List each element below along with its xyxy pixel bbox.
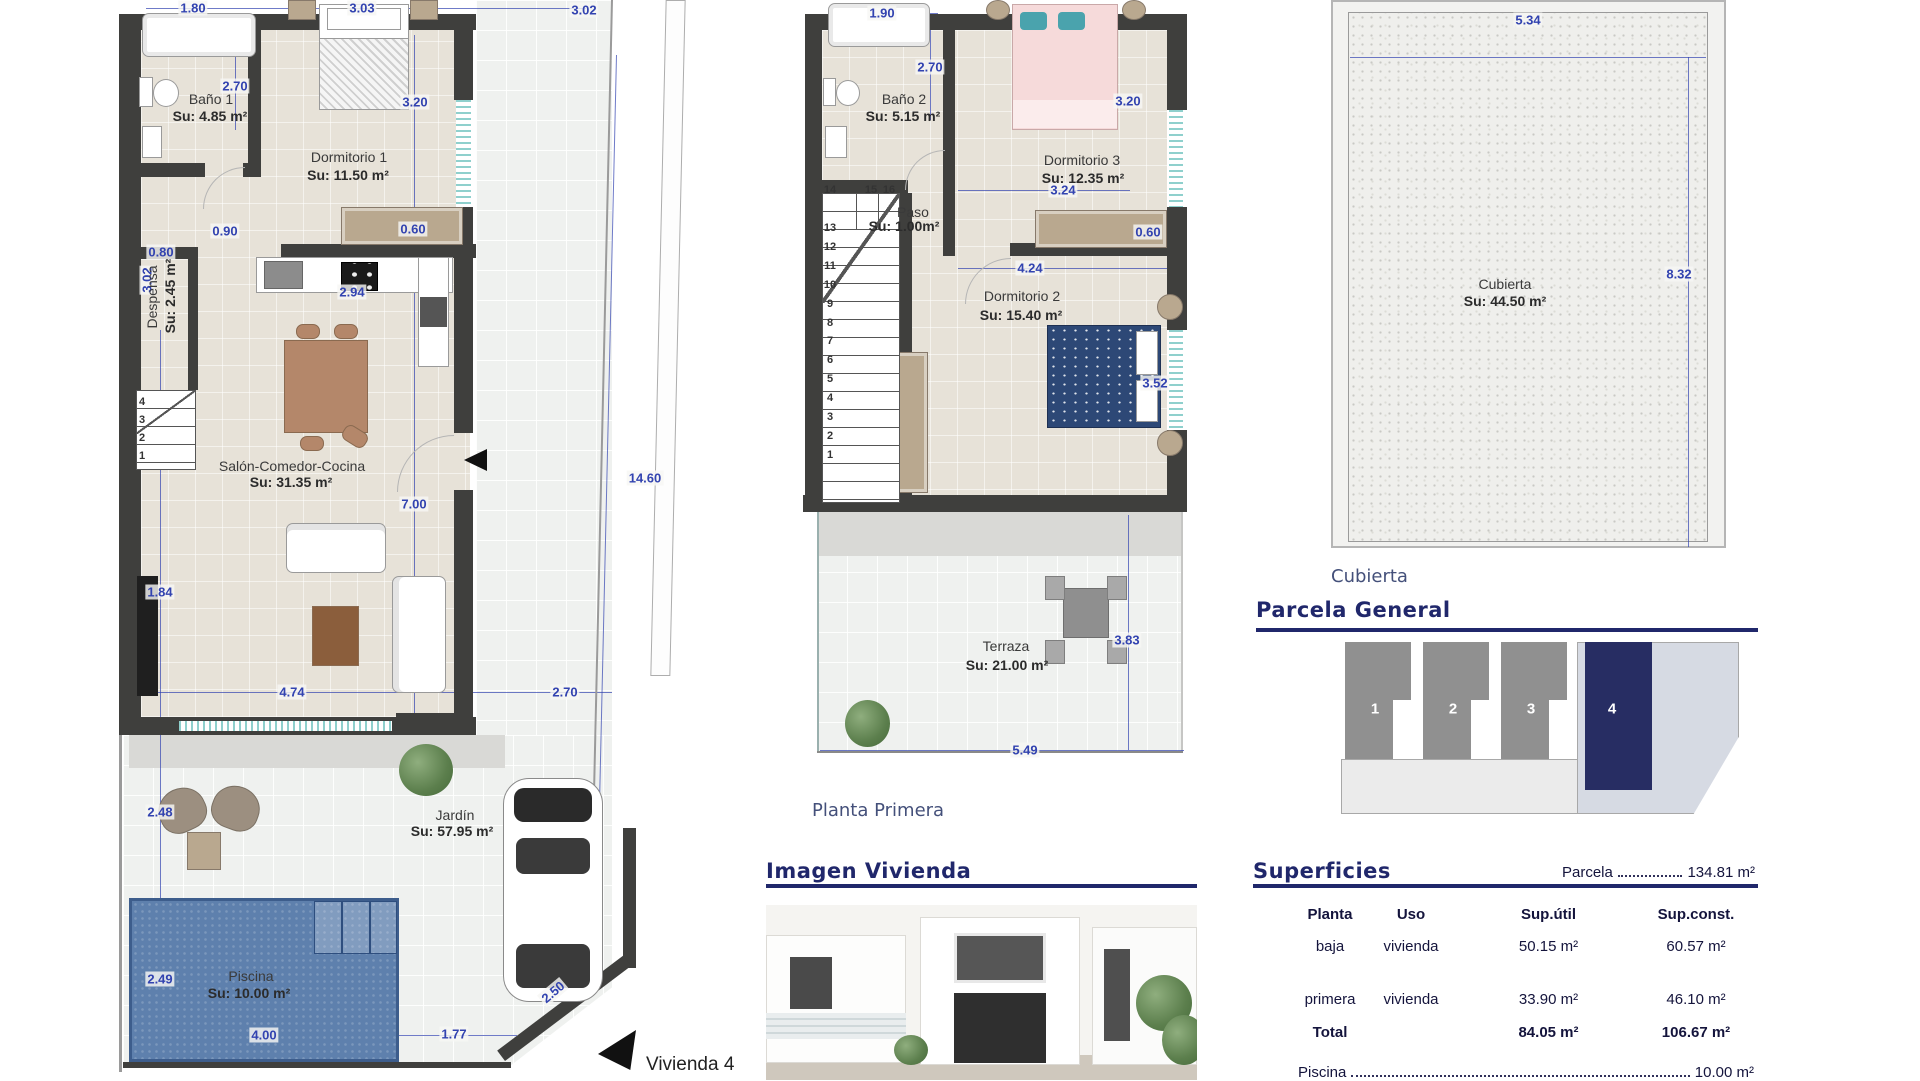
table-total-row: Total 84.05 m² 106.67 m² bbox=[1294, 1024, 1751, 1041]
parcela-value: 134.81 m² bbox=[1687, 864, 1755, 881]
table-row: baja vivienda 50.15 m² 60.57 m² bbox=[1294, 938, 1751, 955]
piscina-value: 10.00 m² bbox=[1695, 1064, 1754, 1081]
dotted-leader bbox=[1618, 864, 1683, 877]
room-area-label: Su: 15.40 m² bbox=[980, 307, 1062, 323]
col-header: Uso bbox=[1366, 906, 1456, 923]
cell-sup-const: 46.10 m² bbox=[1641, 991, 1751, 1008]
room-label: Jardín bbox=[436, 807, 475, 823]
floorplan-sheet: 1 2 3 4 Planta Primera Cubierta Parcela … bbox=[0, 0, 1920, 1080]
dimension-label: 1.77 bbox=[439, 1027, 468, 1042]
room-label: Piscina bbox=[228, 968, 273, 984]
cell-uso: vivienda bbox=[1366, 991, 1456, 1008]
room-area-label: Su: 31.35 m² bbox=[250, 474, 332, 490]
room-label: Terraza bbox=[983, 638, 1030, 654]
stair-number: 3 bbox=[827, 411, 833, 423]
piscina-label: Piscina bbox=[1298, 1064, 1346, 1081]
room-label: Baño 1 bbox=[189, 91, 233, 107]
stair-number: 2 bbox=[827, 430, 833, 442]
dimension-label: 2.49 bbox=[145, 972, 174, 987]
dimension-label: 2.50 bbox=[537, 977, 569, 1007]
cell-planta: primera bbox=[1294, 991, 1366, 1008]
dimension-label: 3.03 bbox=[347, 1, 376, 16]
superficies-title: Superficies bbox=[1253, 859, 1391, 883]
room-area-label: Su: 11.50 m² bbox=[307, 167, 389, 183]
stair-number: 3 bbox=[139, 414, 145, 426]
dimension-label: 5.49 bbox=[1010, 743, 1039, 758]
parcela-label: Parcela bbox=[1562, 864, 1613, 881]
cell-total-const: 106.67 m² bbox=[1641, 1024, 1751, 1041]
stair-number: 2 bbox=[139, 432, 145, 444]
dimension-label: 2.48 bbox=[145, 805, 174, 820]
dimension-label: 2.94 bbox=[337, 285, 366, 300]
stair-number: 15 bbox=[865, 184, 877, 196]
dimension-label: 14.60 bbox=[627, 471, 664, 486]
dimension-label: 3.20 bbox=[400, 95, 429, 110]
stair-number: 5 bbox=[827, 373, 833, 385]
col-header: Sup.útil bbox=[1456, 906, 1641, 923]
room-area-label: Su: 10.00 m² bbox=[208, 985, 290, 1001]
room-area-label: Su: 1.00m² bbox=[869, 218, 940, 234]
stair-number: 1 bbox=[139, 450, 145, 462]
table-row: primera vivienda 33.90 m² 46.10 m² bbox=[1294, 991, 1751, 1008]
stair-number: 8 bbox=[827, 317, 833, 329]
stair-number: 4 bbox=[827, 392, 833, 404]
stair-number: 9 bbox=[827, 298, 833, 310]
piscina-line: Piscina 10.00 m² bbox=[1298, 1064, 1754, 1081]
room-area-label: Su: 2.45 m² bbox=[162, 259, 178, 334]
dimension-label: 4.74 bbox=[277, 685, 306, 700]
room-area-label: Su: 57.95 m² bbox=[411, 823, 493, 839]
dimension-label: 7.00 bbox=[399, 497, 428, 512]
cell-sup-const: 60.57 m² bbox=[1641, 938, 1751, 955]
dimension-label: 3.52 bbox=[1140, 376, 1169, 391]
room-label: Baño 2 bbox=[882, 91, 926, 107]
dimension-label: 0.90 bbox=[210, 224, 239, 239]
cubierta-caption: Cubierta bbox=[1331, 566, 1408, 587]
col-header: Planta bbox=[1294, 906, 1366, 923]
stair-number: 7 bbox=[827, 335, 833, 347]
dimension-label: 1.90 bbox=[867, 6, 896, 21]
table-header-row: Planta Uso Sup.útil Sup.const. bbox=[1294, 906, 1751, 923]
unit-number: 3 bbox=[1527, 701, 1535, 718]
cell-sup-util: 33.90 m² bbox=[1456, 991, 1641, 1008]
dimension-label: 8.32 bbox=[1664, 267, 1693, 282]
room-area-label: Su: 44.50 m² bbox=[1464, 293, 1546, 309]
room-area-label: Su: 4.85 m² bbox=[173, 108, 248, 124]
dimension-label: 3.20 bbox=[1113, 94, 1142, 109]
stair-number: 16 bbox=[883, 184, 895, 196]
imagen-vivienda-rule bbox=[766, 884, 1197, 888]
room-area-label: Su: 12.35 m² bbox=[1042, 170, 1124, 186]
room-label: Dormitorio 3 bbox=[1044, 152, 1120, 168]
dimension-label: 5.34 bbox=[1513, 13, 1542, 28]
room-label: Dormitorio 2 bbox=[984, 288, 1060, 304]
unit-number: 1 bbox=[1371, 701, 1379, 718]
cell-total-label: Total bbox=[1294, 1024, 1366, 1041]
stair-number: 12 bbox=[824, 241, 836, 253]
superficies-rule bbox=[1253, 884, 1758, 888]
room-area-label: Su: 5.15 m² bbox=[866, 108, 941, 124]
cell-total-util: 84.05 m² bbox=[1456, 1024, 1641, 1041]
unit-number: 2 bbox=[1449, 701, 1457, 718]
room-label: Salón-Comedor-Cocina bbox=[219, 458, 365, 474]
room-label: Cubierta bbox=[1479, 276, 1532, 292]
imagen-vivienda-title: Imagen Vivienda bbox=[766, 859, 971, 883]
dimension-label: 3.02 bbox=[569, 3, 598, 18]
dimension-label: 1.80 bbox=[178, 1, 207, 16]
dimension-label: 2.70 bbox=[550, 685, 579, 700]
stair-number: 14 bbox=[824, 184, 836, 196]
vivienda-label: Vivienda 4 bbox=[646, 1054, 734, 1076]
dimension-label: 2.70 bbox=[915, 60, 944, 75]
dimension-label: 4.00 bbox=[249, 1028, 278, 1043]
parcela-total-line: Parcela 134.81 m² bbox=[1562, 864, 1755, 881]
dimension-label: 3.83 bbox=[1112, 633, 1141, 648]
room-label: Dormitorio 1 bbox=[311, 149, 387, 165]
room-label: Despensa bbox=[144, 265, 160, 328]
unit-number: 4 bbox=[1608, 701, 1616, 718]
col-header: Sup.const. bbox=[1641, 906, 1751, 923]
cell-empty bbox=[1366, 1024, 1456, 1041]
dimension-label: 0.60 bbox=[1133, 225, 1162, 240]
parcela-general-rule bbox=[1256, 628, 1758, 632]
dimension-label: 1.84 bbox=[145, 585, 174, 600]
parcela-general-title: Parcela General bbox=[1256, 598, 1451, 622]
stair-number: 10 bbox=[824, 279, 836, 291]
stair-number: 13 bbox=[824, 222, 836, 234]
dimension-label: 0.60 bbox=[398, 222, 427, 237]
dotted-leader bbox=[1351, 1064, 1689, 1077]
room-area-label: Su: 21.00 m² bbox=[966, 657, 1048, 673]
cell-sup-util: 50.15 m² bbox=[1456, 938, 1641, 955]
stair-number: 11 bbox=[824, 260, 836, 272]
dimension-label: 4.24 bbox=[1015, 261, 1044, 276]
dimension-label: 0.80 bbox=[146, 245, 175, 260]
planta-primera-caption: Planta Primera bbox=[812, 800, 944, 821]
cell-planta: baja bbox=[1294, 938, 1366, 955]
stair-number: 6 bbox=[827, 354, 833, 366]
cell-uso: vivienda bbox=[1366, 938, 1456, 955]
stair-number: 1 bbox=[827, 449, 833, 461]
stair-number: 4 bbox=[139, 396, 145, 408]
